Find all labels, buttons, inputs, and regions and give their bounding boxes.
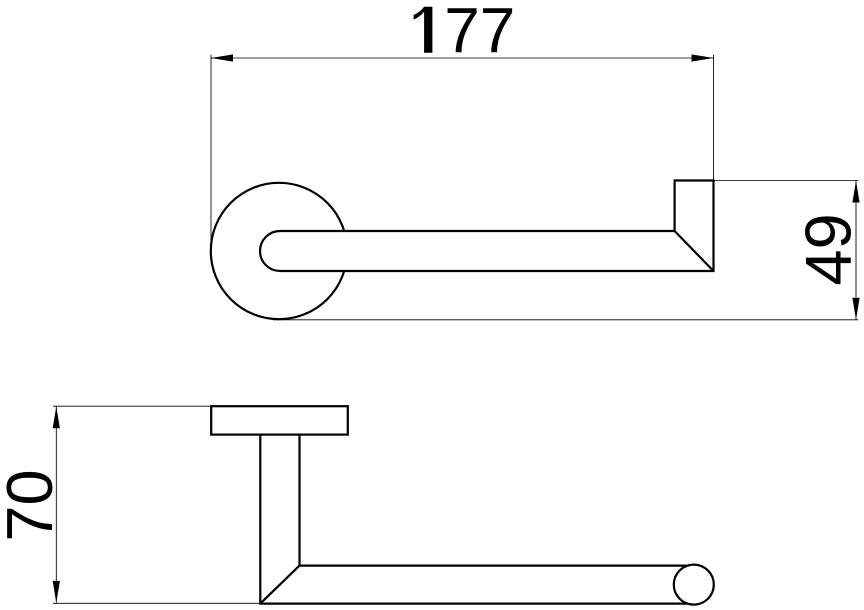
svg-text:49: 49 bbox=[791, 213, 864, 285]
svg-text:77: 77 bbox=[444, 0, 515, 67]
svg-text:70: 70 bbox=[0, 469, 66, 541]
